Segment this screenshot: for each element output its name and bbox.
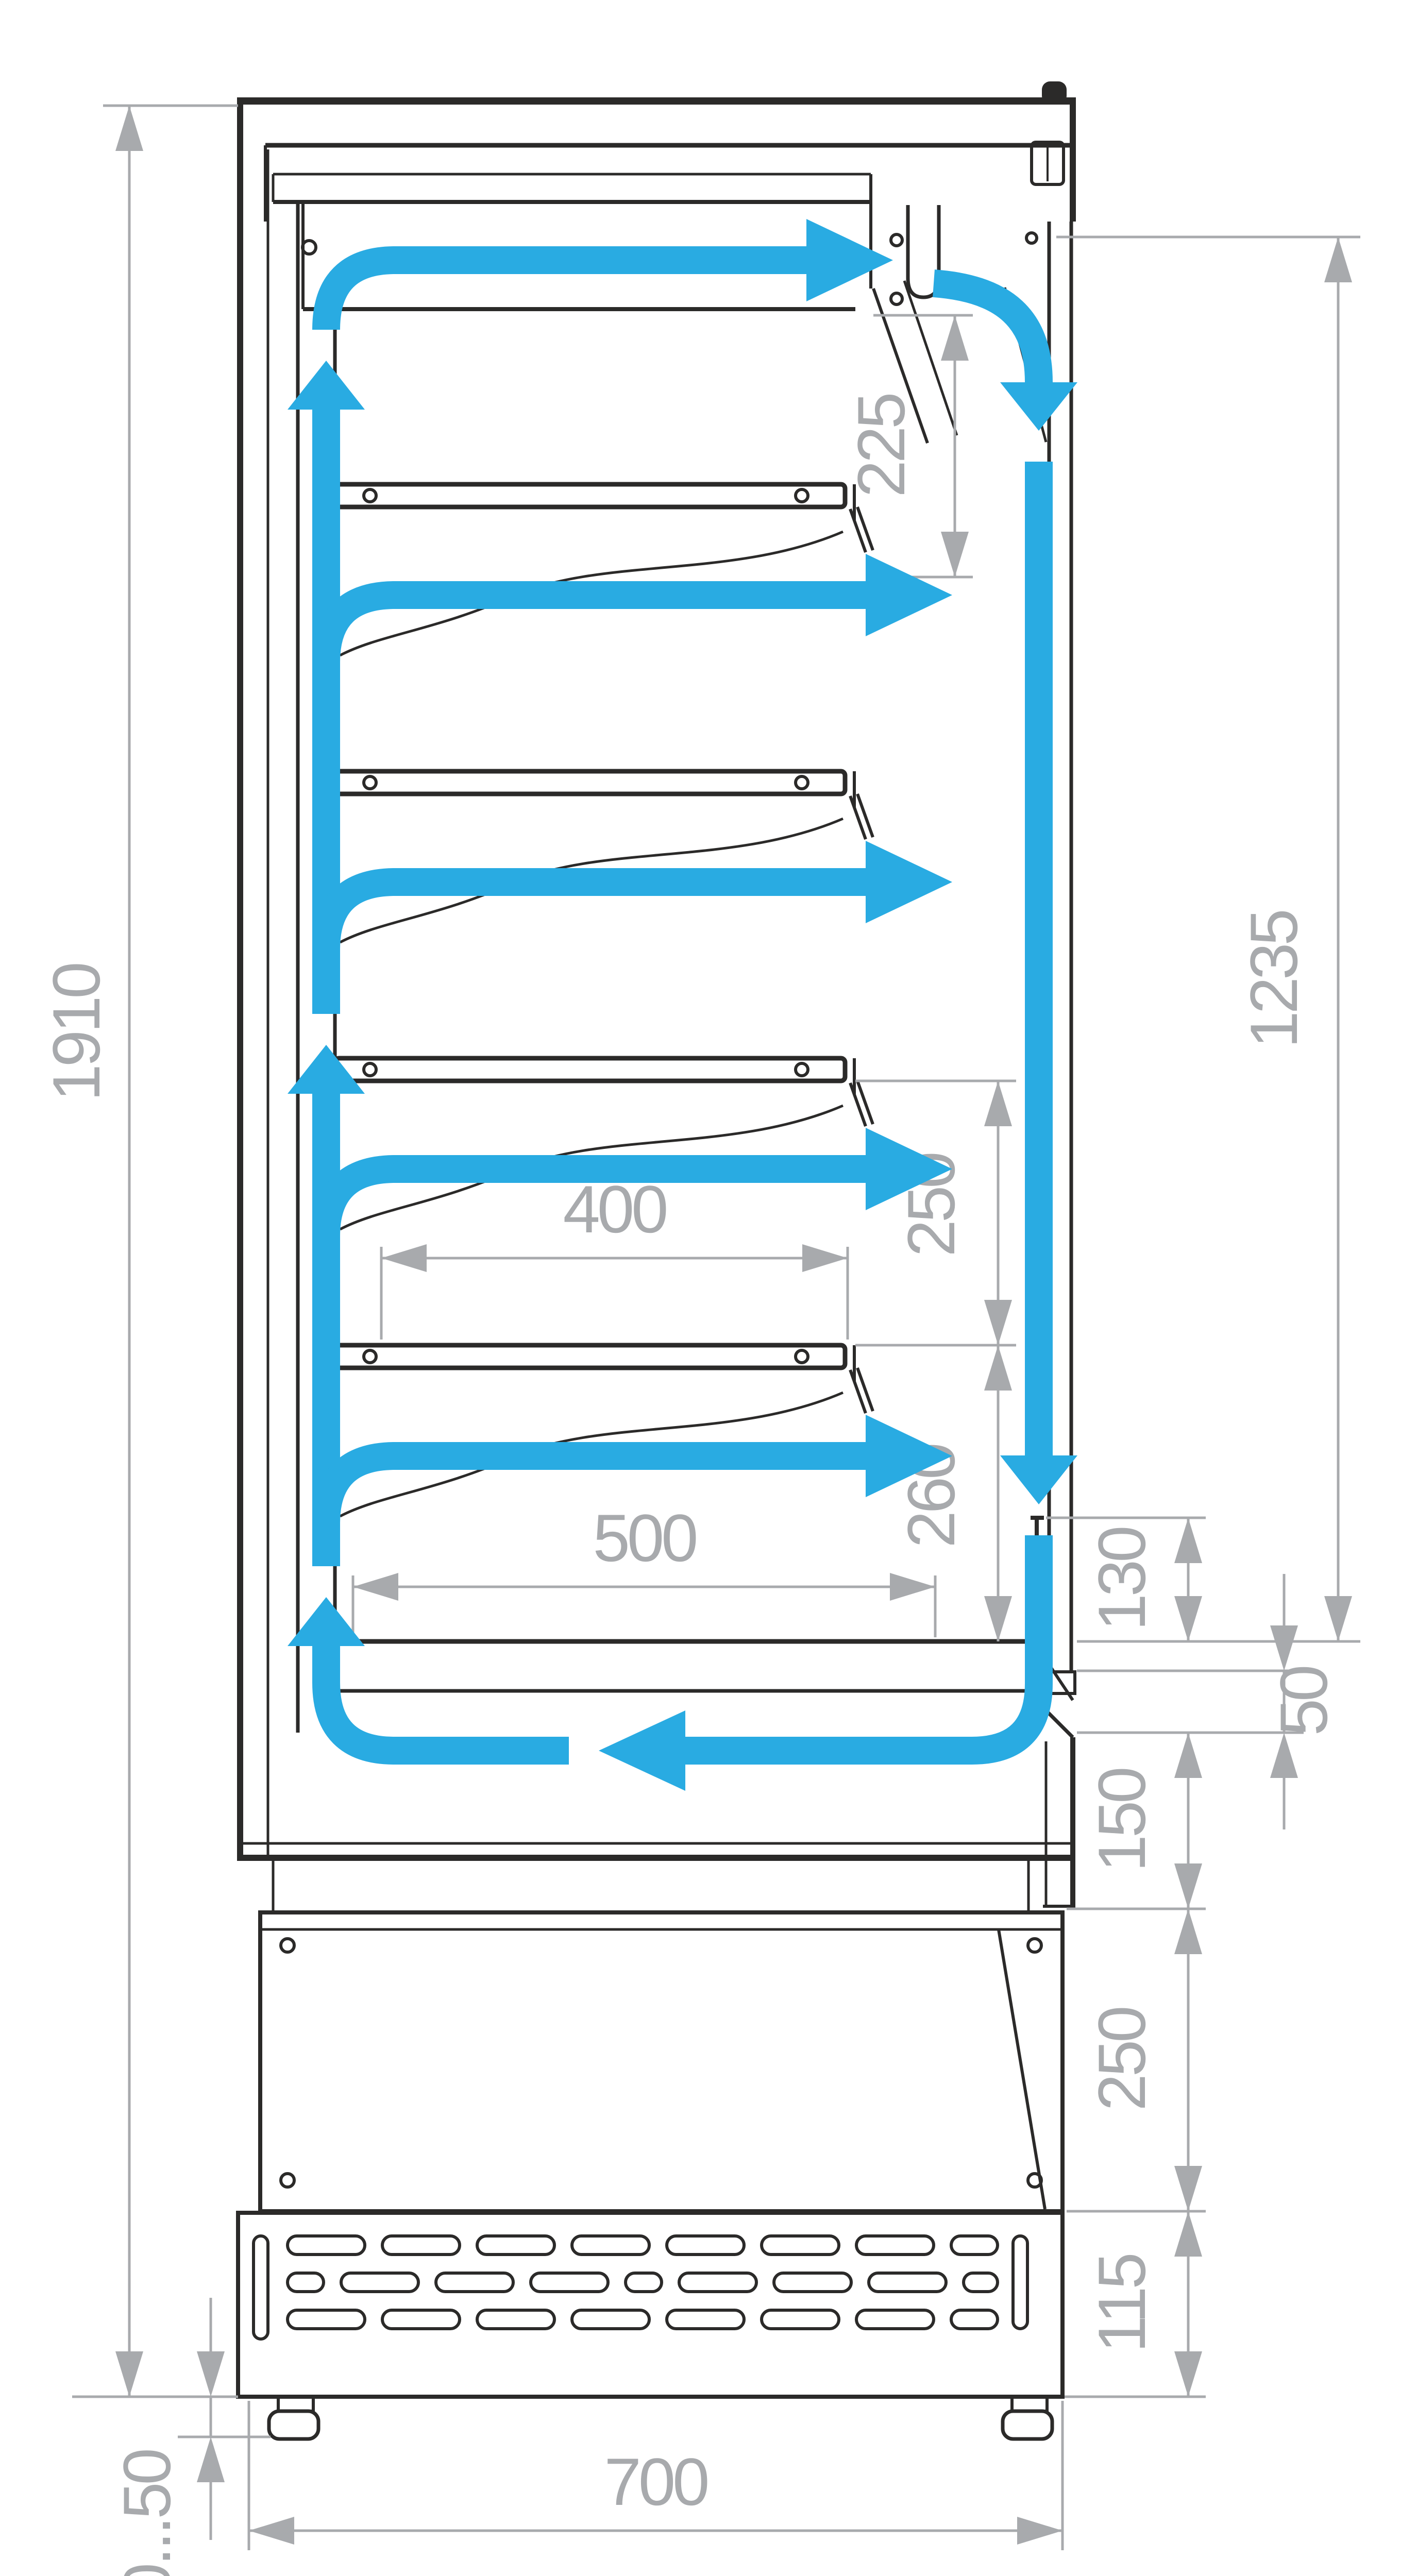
dim-label-225: 225 xyxy=(844,395,919,498)
shelf-airflow-arrows xyxy=(326,554,952,1523)
dimension-overall-height: 1910 xyxy=(39,106,238,2397)
machine-base xyxy=(260,1912,1062,2211)
rear-riser-flow xyxy=(288,361,569,1751)
dim-label-50: 50 xyxy=(1266,1667,1341,1736)
shelf-row-1 xyxy=(327,484,873,655)
door-hinge xyxy=(1032,81,1067,184)
shelf-row-2 xyxy=(327,771,873,942)
drawing-page: 1910 30...50 700 225 xyxy=(0,0,1417,2576)
dimension-depth-700: 700 xyxy=(249,2401,1062,2550)
return-airflow xyxy=(599,1710,685,1791)
dim-label-150: 150 xyxy=(1084,1769,1159,1872)
dimension-deck-depth: 500 xyxy=(353,1500,935,1637)
shelf-row-4 xyxy=(327,1345,873,1516)
dimension-shelf-depth: 400 xyxy=(381,1172,848,1340)
dimension-base-height: 250 xyxy=(1067,1909,1206,2211)
base-screws xyxy=(281,1939,1041,2187)
cabinet-cross-section-diagram: 1910 30...50 700 225 xyxy=(0,0,1417,2576)
dim-label-1910: 1910 xyxy=(39,964,114,1101)
dimension-225: 225 xyxy=(844,315,973,577)
cabinet-structure xyxy=(237,81,1076,2439)
dim-label-115: 115 xyxy=(1084,2255,1159,2353)
louver-slots xyxy=(254,2236,1027,2339)
deck-and-riser xyxy=(336,1518,1073,1737)
dim-label-500: 500 xyxy=(593,1500,697,1575)
shelves xyxy=(327,484,873,1516)
canopy-discharge-duct xyxy=(273,174,871,309)
dimension-shelf-pitch: 250 xyxy=(855,1081,1016,1345)
dim-label-700: 700 xyxy=(604,2444,708,2519)
dim-label-feet: 30...50 xyxy=(109,2450,184,2576)
louver-panel xyxy=(238,2213,1062,2397)
dimension-150: 150 xyxy=(1067,1733,1206,1909)
dim-label-130: 130 xyxy=(1084,1528,1159,1631)
dimensions: 1910 30...50 700 225 xyxy=(39,106,1360,2576)
leveling-foot-left xyxy=(269,2397,318,2439)
dimension-260: 260 xyxy=(893,1345,1012,1641)
dimension-115: 115 xyxy=(1065,2211,1206,2397)
dimension-feet-range: 30...50 xyxy=(109,2298,271,2576)
top-discharge-flow xyxy=(326,219,1039,382)
leveling-foot-right xyxy=(1003,2397,1052,2439)
dim-label-250-base: 250 xyxy=(1084,2008,1159,2111)
dim-label-1235: 1235 xyxy=(1236,911,1311,1048)
dimension-1235: 1235 xyxy=(1056,237,1360,1641)
